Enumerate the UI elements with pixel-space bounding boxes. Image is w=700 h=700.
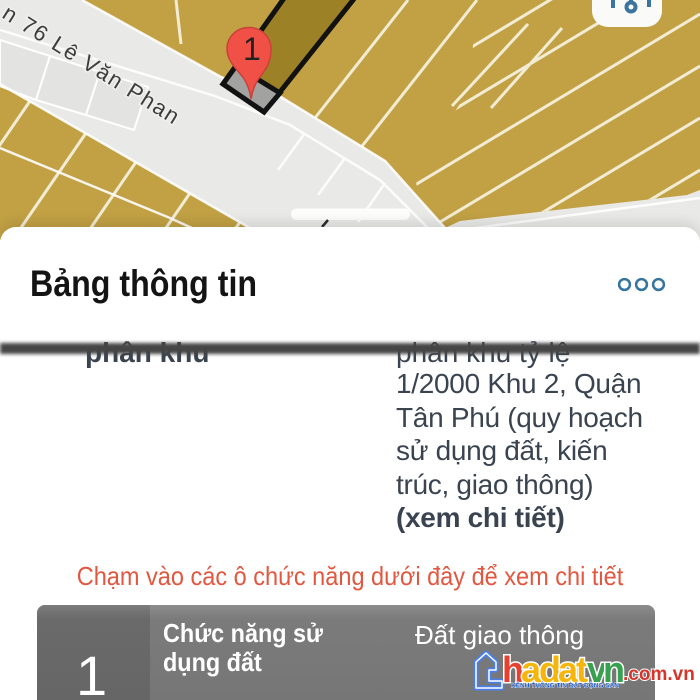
svg-text:.com.vn: .com.vn	[623, 664, 695, 685]
svg-text:1: 1	[243, 31, 261, 67]
